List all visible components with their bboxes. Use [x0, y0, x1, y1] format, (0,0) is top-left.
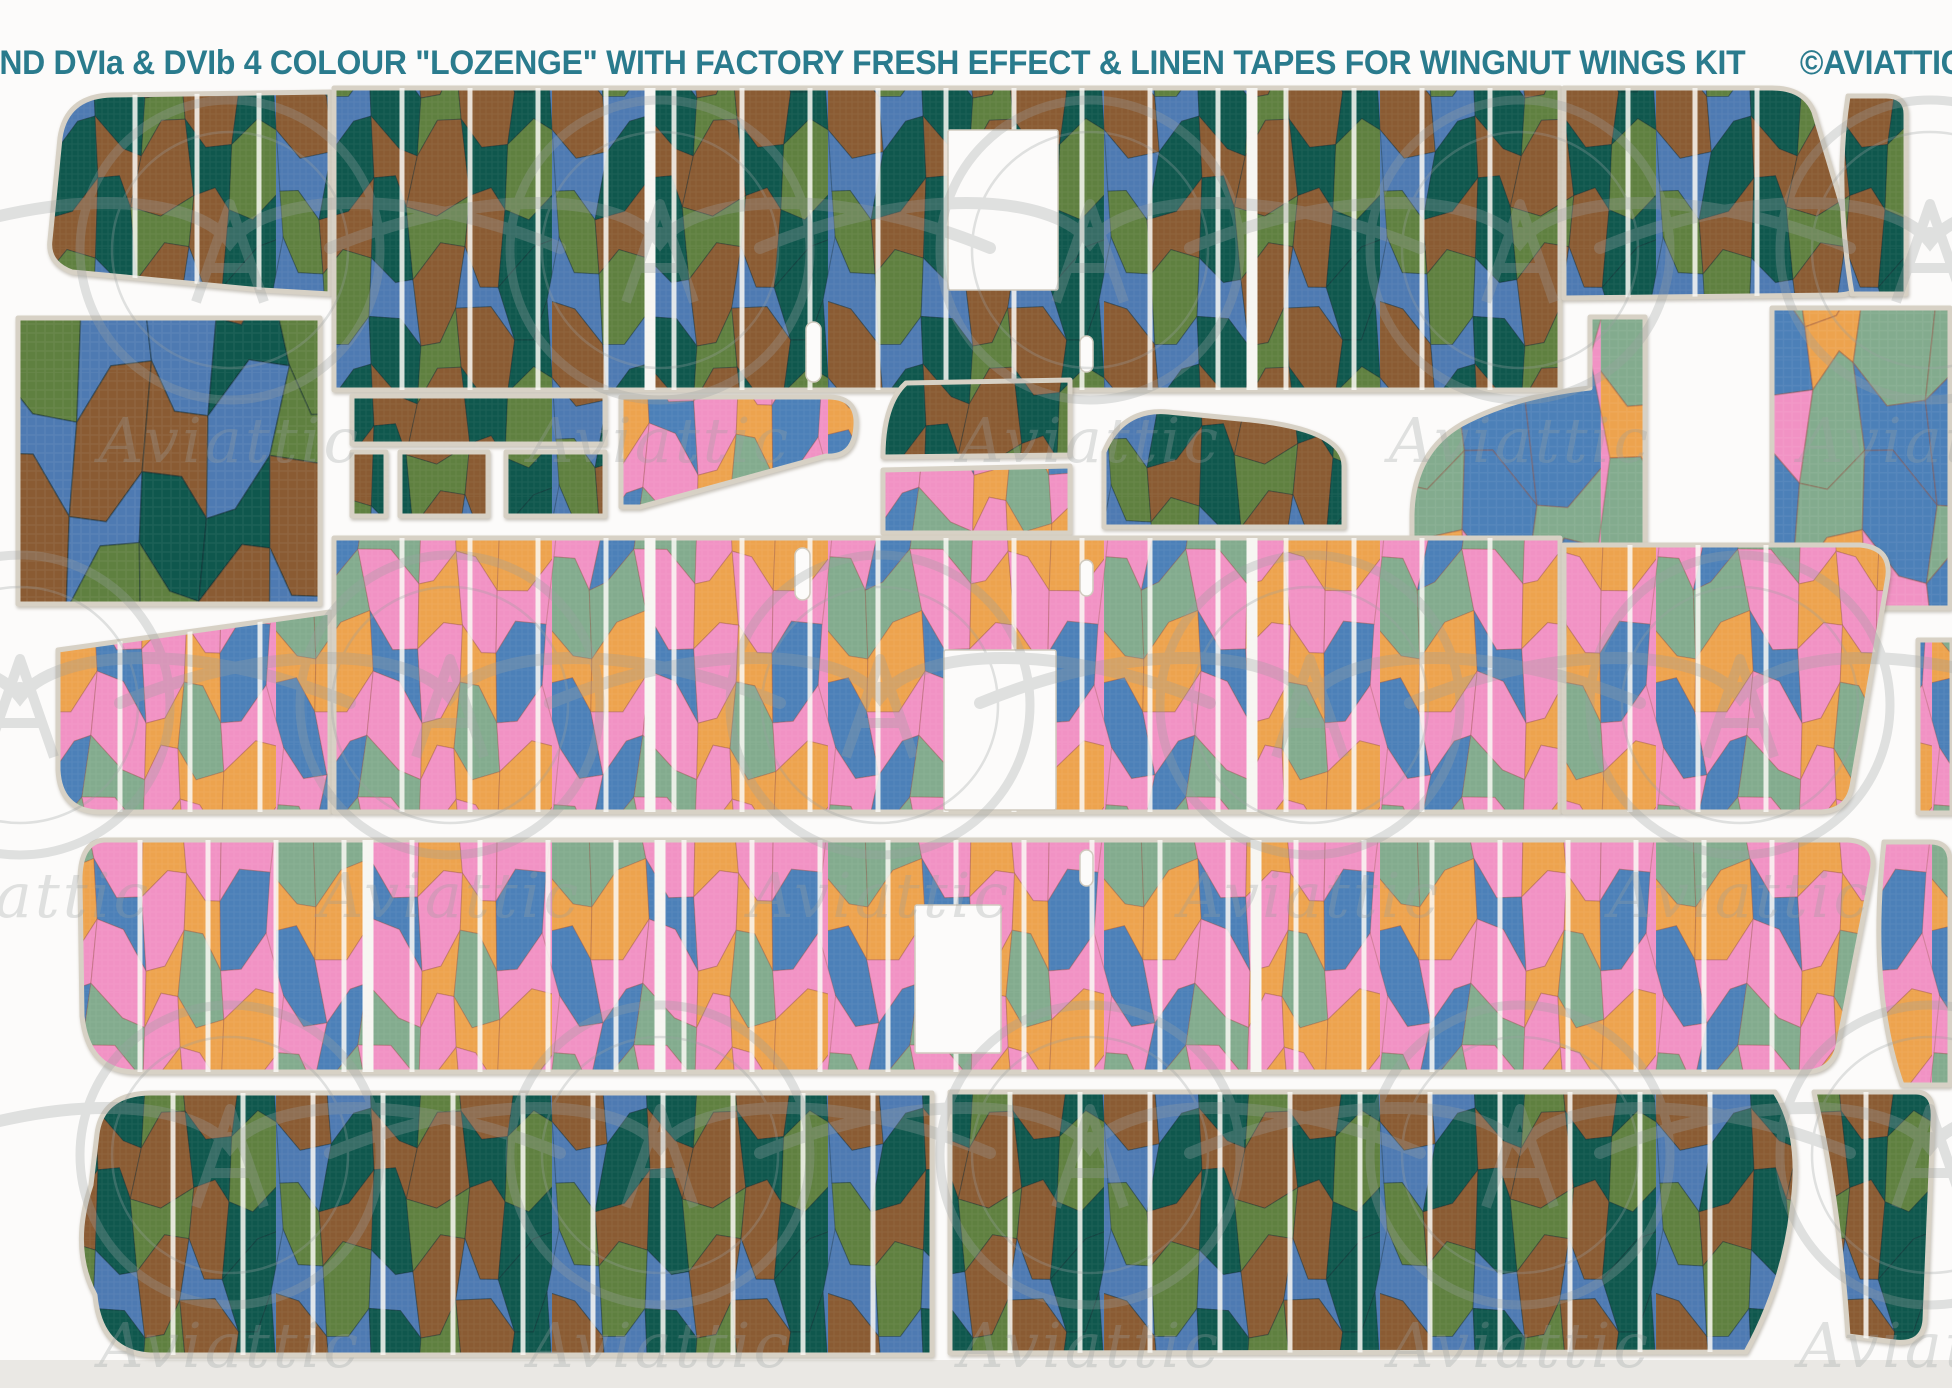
slot-cutout: [806, 322, 821, 382]
rib-tape: [1708, 1092, 1713, 1353]
sheet-title: ROLAND DVIa & DVIb 4 COLOUR "LOZENGE" WI…: [0, 44, 1745, 83]
rib-tape: [604, 538, 609, 812]
rib-tape: [1488, 88, 1493, 390]
rib-tape: [876, 88, 881, 390]
rib-tape: [604, 88, 609, 390]
rib-tape: [1022, 840, 1027, 1072]
under-corner-row3: [1879, 842, 1950, 1085]
panel-separation: [1247, 538, 1258, 812]
sheet-copyright: ©AVIATTIC 2014: [1800, 44, 1952, 83]
upper-wing-panel-top-main: [334, 88, 1560, 390]
slot-cutout: [1080, 850, 1093, 886]
rib-tape: [1216, 538, 1221, 812]
panel-separation: [1247, 88, 1258, 390]
rib-tape: [1755, 88, 1760, 298]
rib-tape: [1352, 88, 1357, 390]
rib-tape: [1158, 840, 1163, 1072]
rib-tape: [740, 88, 745, 390]
window-cutout: [944, 650, 1056, 810]
slot-cutout: [1080, 560, 1093, 596]
decal-sheet-page: Aviattic ROLAND DVIa & DVIb 4 COLOUR "LO…: [0, 0, 1952, 1388]
rib-tape: [1288, 1092, 1293, 1353]
rib-tape: [133, 92, 138, 294]
upper-wing-panel-top-right: [1564, 88, 1862, 298]
rib-tape: [1148, 88, 1153, 390]
rib-tape: [1566, 840, 1571, 1072]
upper-wing-panel-top-right-outline: [1564, 88, 1862, 298]
under-wing-left-row2-outline: [58, 612, 330, 812]
upper-small-rect-2: [400, 452, 488, 516]
rib-tape: [195, 92, 200, 294]
rib-tape: [614, 840, 619, 1072]
rib-tape: [682, 840, 687, 1072]
rib-tape: [258, 612, 263, 812]
rib-tape: [206, 840, 211, 1072]
under-wing-main-row2: [334, 538, 1560, 812]
rib-tape: [871, 1093, 876, 1355]
rib-tape: [1864, 1092, 1869, 1342]
rib-tape: [188, 612, 193, 812]
rib-tape: [451, 1093, 456, 1355]
rib-tape: [400, 538, 405, 812]
rib-tape: [1626, 88, 1631, 298]
under-corner-row3-outline: [1879, 842, 1950, 1085]
rib-tape: [468, 88, 473, 390]
sheet-header: ROLAND DVIa & DVIb 4 COLOUR "LOZENGE" WI…: [59, 40, 1894, 86]
rib-tape: [274, 840, 279, 1072]
upper-small-rect-2-outline: [400, 452, 488, 516]
under-wing-left-row2: [58, 612, 330, 812]
rib-tape: [1628, 545, 1633, 812]
rib-tape: [1693, 88, 1698, 298]
rib-tape: [1284, 88, 1289, 390]
rib-tape: [257, 92, 262, 294]
rib-tape: [400, 88, 405, 390]
rib-tape: [1696, 545, 1701, 812]
decal-sheet-canvas: Aviattic: [0, 0, 1952, 1388]
